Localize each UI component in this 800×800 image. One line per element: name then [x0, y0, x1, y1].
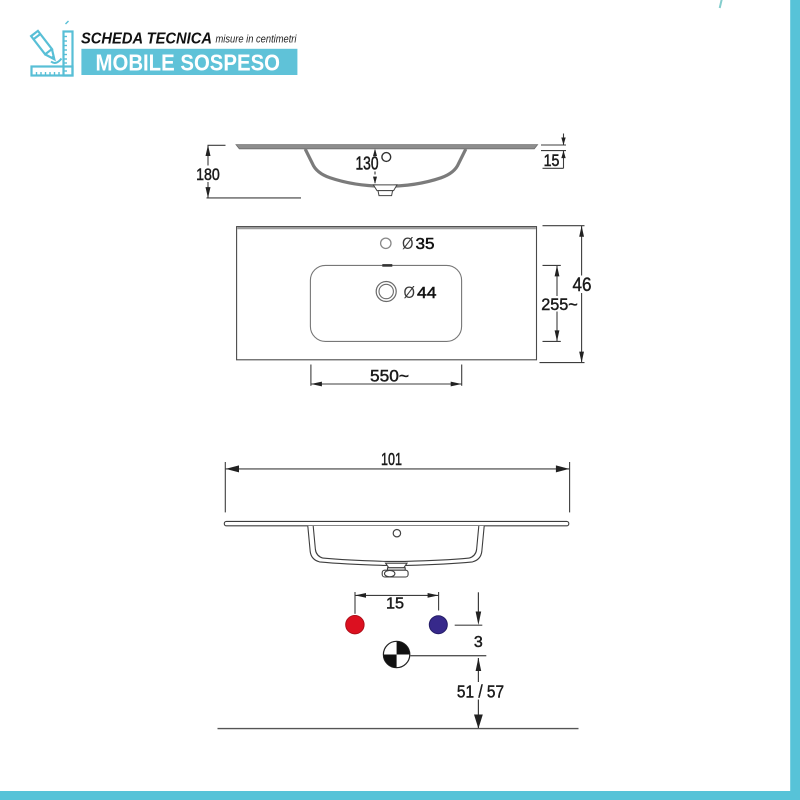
svg-text:15: 15: [544, 152, 560, 170]
svg-text:101: 101: [381, 449, 402, 469]
svg-text:46: 46: [573, 274, 592, 296]
svg-text:Ø: Ø: [404, 284, 416, 302]
svg-text:3: 3: [474, 634, 483, 651]
svg-text:Ø: Ø: [402, 235, 414, 253]
svg-text:15: 15: [386, 595, 404, 612]
svg-text:SCHEDA TECNICA: SCHEDA TECNICA: [81, 31, 212, 48]
svg-text:180: 180: [196, 165, 220, 184]
svg-text:130: 130: [356, 154, 379, 174]
svg-text:MOBILE SOSPESO: MOBILE SOSPESO: [96, 49, 281, 75]
svg-text:misure in centimetri: misure in centimetri: [216, 34, 297, 46]
svg-text:35: 35: [416, 236, 435, 253]
svg-text:550~: 550~: [370, 368, 409, 386]
svg-text:255~: 255~: [541, 296, 578, 314]
svg-text:51 / 57: 51 / 57: [457, 682, 504, 702]
svg-text:44: 44: [417, 285, 437, 302]
